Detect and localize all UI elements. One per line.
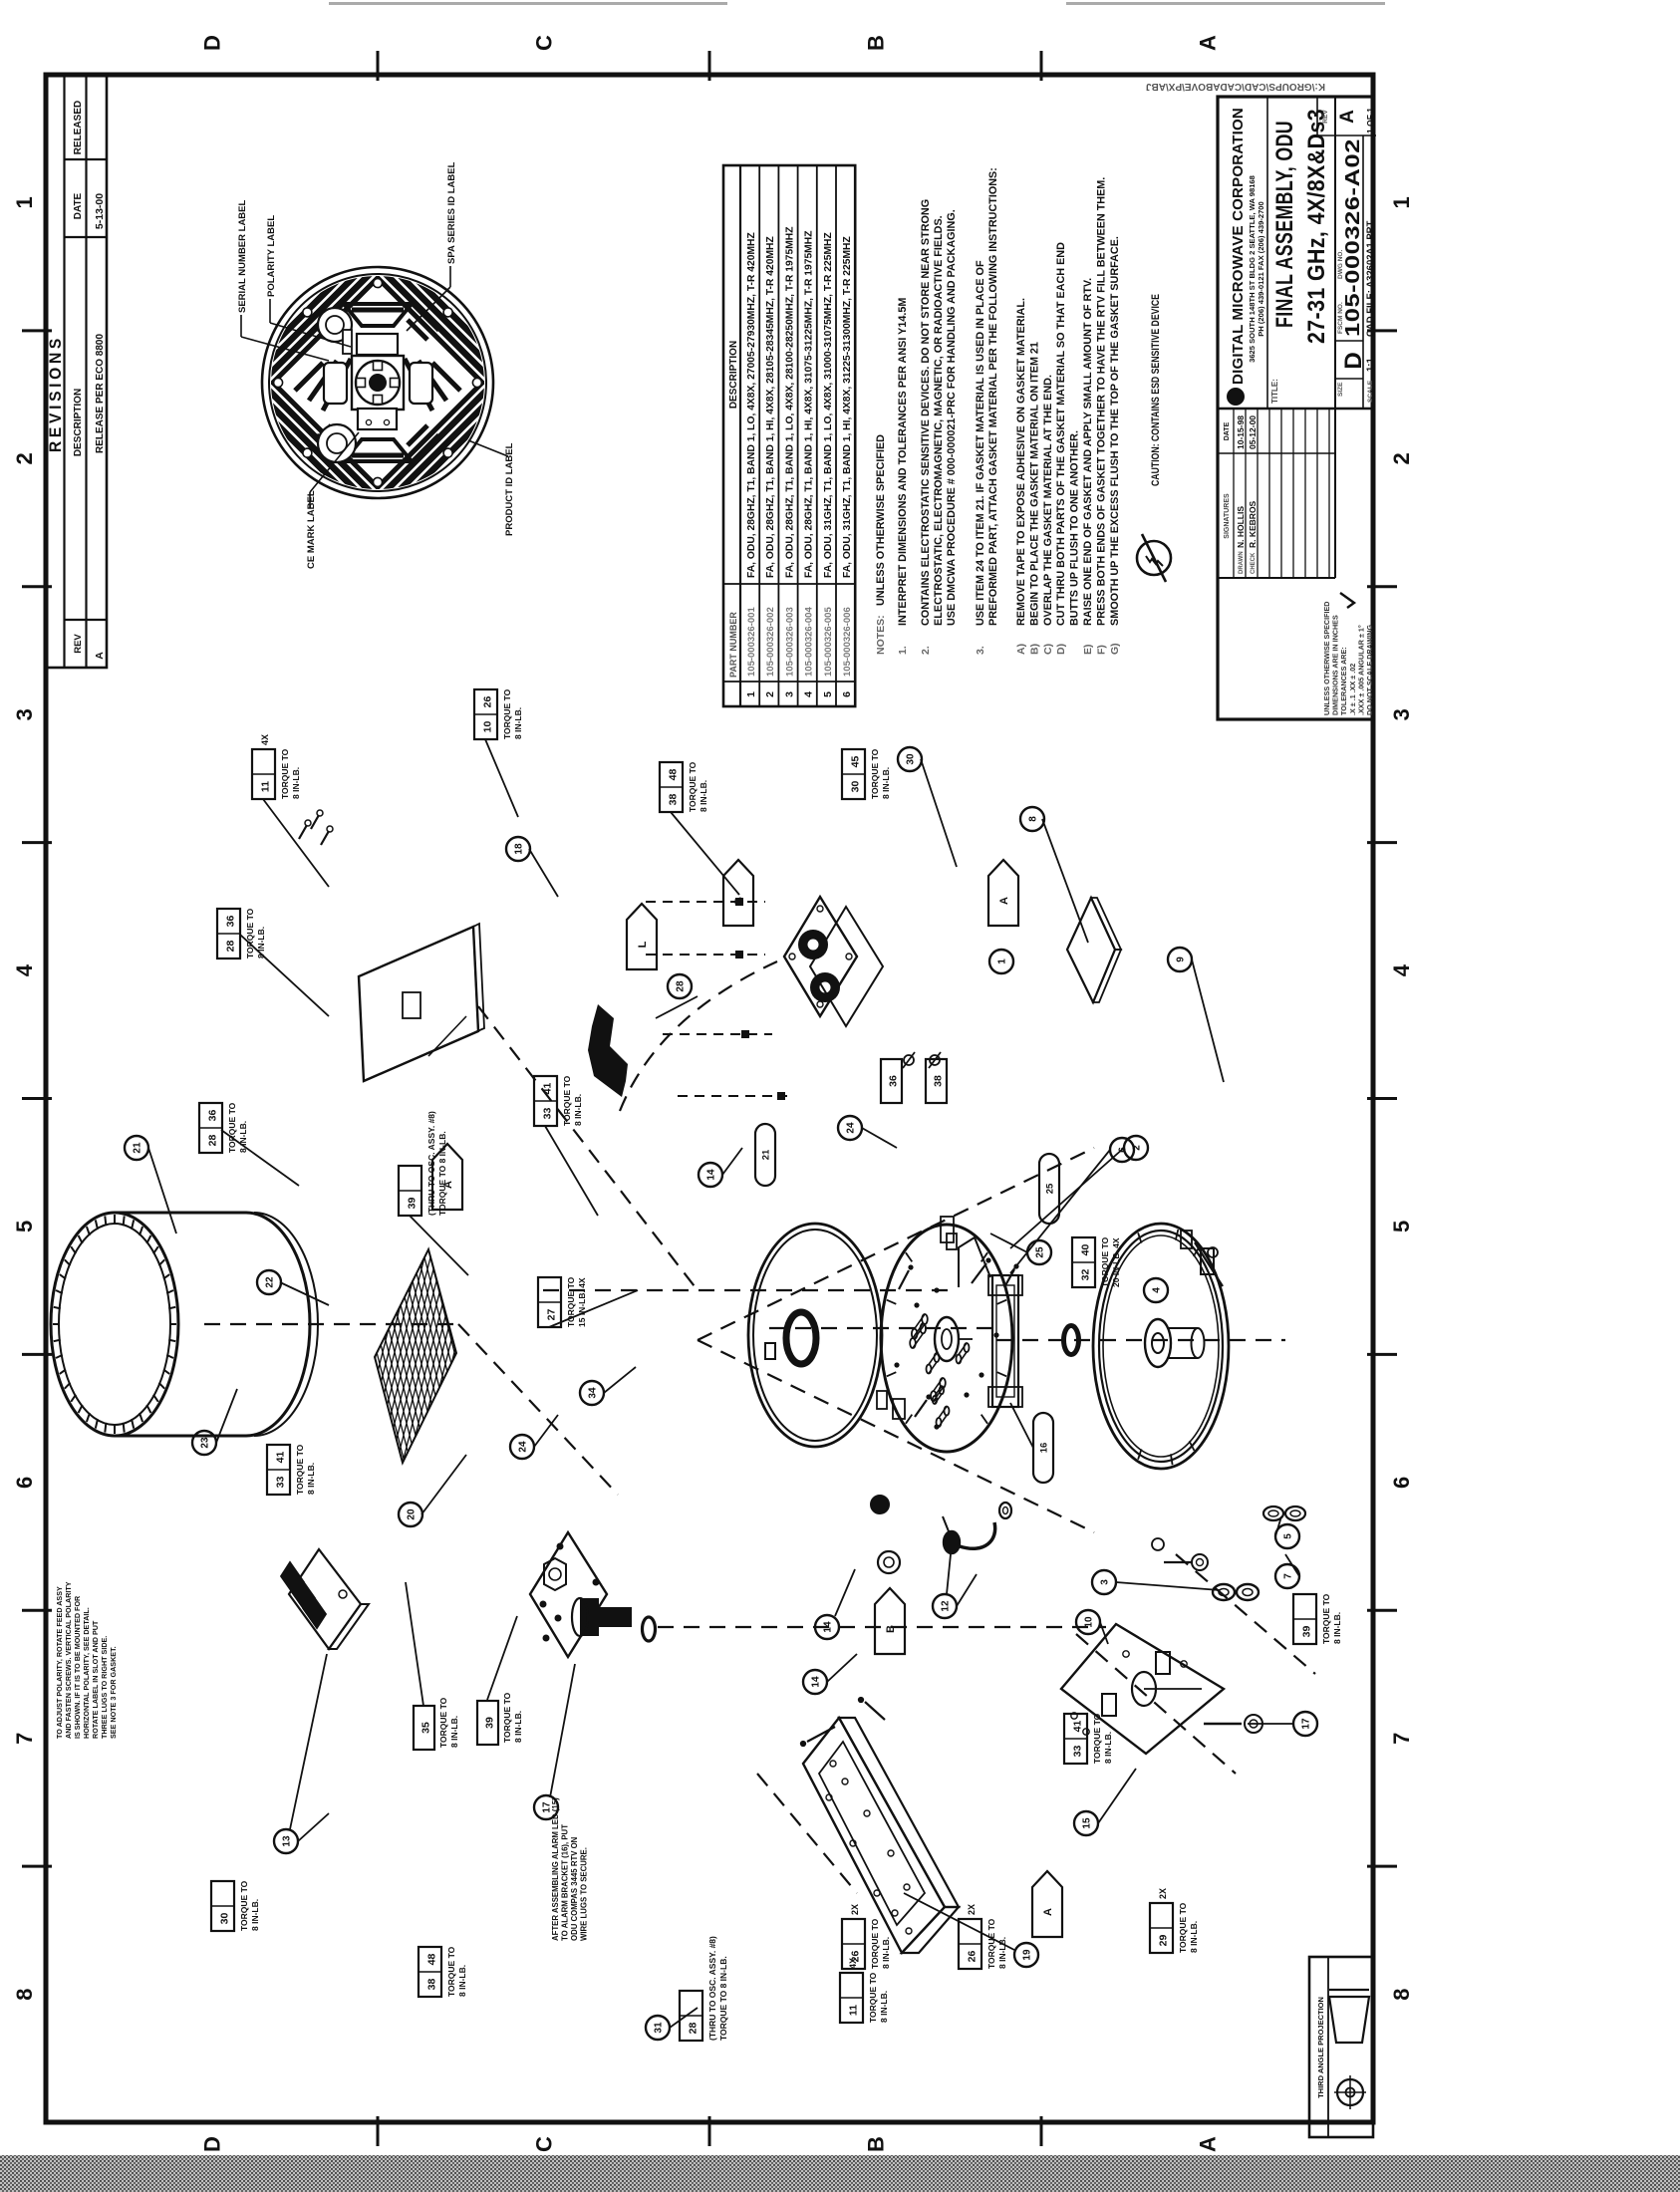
svg-text:27-31 GHz, 4X/8X&Ds3: 27-31 GHz, 4X/8X&Ds3 xyxy=(1303,109,1330,344)
svg-text:SIZE: SIZE xyxy=(1337,382,1344,397)
svg-text:DATE: DATE xyxy=(1224,421,1231,440)
svg-text:D): D) xyxy=(1055,644,1067,655)
svg-text:SERIAL NUMBER LABEL: SERIAL NUMBER LABEL xyxy=(237,200,248,313)
svg-text:3: 3 xyxy=(12,708,37,720)
svg-text:36: 36 xyxy=(888,1075,900,1087)
svg-text:CONTAINS ELECTROSTATIC SENSITI: CONTAINS ELECTROSTATIC SENSITIVE DEVICES… xyxy=(920,199,932,626)
svg-text:TORQUE TO 8 IN-LB.: TORQUE TO 8 IN-LB. xyxy=(718,1956,728,2041)
svg-text:39: 39 xyxy=(407,1198,419,1210)
svg-text:USE DMCWA PROCEDURE # 000-0000: USE DMCWA PROCEDURE # 000-000021-PRC FOR… xyxy=(946,209,958,626)
svg-text:1: 1 xyxy=(12,196,37,208)
svg-text:TORQUE TO: TORQUE TO xyxy=(245,908,255,959)
svg-text:TITLE:: TITLE: xyxy=(1270,379,1279,404)
svg-text:D: D xyxy=(200,2136,225,2152)
svg-text:33: 33 xyxy=(275,1477,287,1489)
svg-text:15: 15 xyxy=(1082,1817,1093,1829)
svg-text:31: 31 xyxy=(654,2022,665,2034)
svg-text:2: 2 xyxy=(12,452,37,464)
svg-text:33: 33 xyxy=(1072,1746,1084,1758)
svg-text:36: 36 xyxy=(225,916,237,928)
svg-text:DRAWN: DRAWN xyxy=(1239,551,1245,574)
svg-text:8 IN-LB.: 8 IN-LB. xyxy=(513,707,523,739)
svg-text:18: 18 xyxy=(514,843,525,855)
svg-text:8 IN-LB.: 8 IN-LB. xyxy=(250,1899,260,1931)
svg-text:39: 39 xyxy=(484,1717,496,1729)
svg-text:7: 7 xyxy=(1389,1733,1414,1745)
svg-text:TORQUE TO: TORQUE TO xyxy=(870,748,880,799)
svg-text:8 IN-LB.: 8 IN-LB. xyxy=(699,780,708,812)
svg-text:REV: REV xyxy=(1322,110,1329,124)
svg-text:TORQUE TO: TORQUE TO xyxy=(870,1918,880,1969)
svg-text:30: 30 xyxy=(850,781,862,793)
svg-text:TORQUE TO: TORQUE TO xyxy=(280,748,290,799)
svg-text:B: B xyxy=(864,35,889,51)
svg-text:TORQUE TO: TORQUE TO xyxy=(227,1102,237,1153)
svg-text:34: 34 xyxy=(588,1387,599,1399)
svg-text:2: 2 xyxy=(1132,1145,1143,1151)
svg-text:TORQUE TO: TORQUE TO xyxy=(295,1444,305,1495)
svg-text:5: 5 xyxy=(822,691,834,697)
svg-text:TORQUE TO: TORQUE TO xyxy=(446,1946,456,1997)
svg-text:REV: REV xyxy=(73,634,84,654)
svg-text:28: 28 xyxy=(225,941,237,953)
svg-text:4X: 4X xyxy=(848,1958,858,1969)
svg-text:38: 38 xyxy=(668,794,680,806)
svg-text:REMOVE TAPE TO EXPOSE ADHESIVE: REMOVE TAPE TO EXPOSE ADHESIVE ON GASKET… xyxy=(1015,298,1027,626)
svg-text:A: A xyxy=(1337,110,1358,124)
svg-text:PRESS BOTH ENDS OF GASKET TOGE: PRESS BOTH ENDS OF GASKET TOGETHER TO HA… xyxy=(1095,177,1107,626)
svg-text:28: 28 xyxy=(207,1135,219,1147)
svg-text:PRODUCT ID LABEL: PRODUCT ID LABEL xyxy=(504,442,515,536)
svg-text:13: 13 xyxy=(282,1835,293,1847)
svg-text:38: 38 xyxy=(426,1979,438,1991)
svg-text:27: 27 xyxy=(546,1309,558,1321)
svg-text:BUTTS UP FLUSH TO ONE ANOTHER.: BUTTS UP FLUSH TO ONE ANOTHER. xyxy=(1069,430,1081,626)
svg-text:8 IN-LB.: 8 IN-LB. xyxy=(291,767,301,799)
svg-text:4: 4 xyxy=(12,963,37,976)
svg-text:28: 28 xyxy=(688,2023,700,2035)
svg-text:PREFORMED PART, ATTACH GASKET: PREFORMED PART, ATTACH GASKET MATERIAL P… xyxy=(987,167,999,626)
svg-text:05-12-00: 05-12-00 xyxy=(1248,415,1258,449)
svg-text:17: 17 xyxy=(542,1801,553,1813)
svg-text:REVISIONS: REVISIONS xyxy=(46,335,65,452)
svg-text:6: 6 xyxy=(12,1477,37,1489)
svg-text:3: 3 xyxy=(1100,1579,1111,1585)
svg-text:L: L xyxy=(637,941,649,948)
svg-text:16: 16 xyxy=(1039,1443,1050,1454)
svg-text:39: 39 xyxy=(1301,1626,1313,1638)
svg-text:23: 23 xyxy=(200,1437,211,1449)
svg-text:AND FASTEN SCREWS. VERTICAL PO: AND FASTEN SCREWS. VERTICAL POLARITY xyxy=(64,1581,73,1739)
svg-text:ODU COMPAS 3445 RTV ON: ODU COMPAS 3445 RTV ON xyxy=(570,1836,579,1941)
svg-text:4: 4 xyxy=(1152,1287,1163,1293)
svg-text:19: 19 xyxy=(1022,1949,1033,1961)
svg-text:ROTATE LABEL IN SLOT AND PUT: ROTATE LABEL IN SLOT AND PUT xyxy=(91,1620,100,1739)
svg-text:F): F) xyxy=(1095,645,1107,655)
svg-text:6: 6 xyxy=(841,691,853,697)
svg-text:21: 21 xyxy=(761,1149,772,1160)
svg-text:(THRU TO OSC. ASSY. #8): (THRU TO OSC. ASSY. #8) xyxy=(707,1936,717,2041)
svg-text:48: 48 xyxy=(426,1954,438,1966)
svg-text:3: 3 xyxy=(1389,708,1414,720)
svg-text:UNLESS OTHERWISE SPECIFIED: UNLESS OTHERWISE SPECIFIED xyxy=(875,434,887,606)
svg-text:INTERPRET DIMENSIONS AND TOLER: INTERPRET DIMENSIONS AND TOLERANCES PER … xyxy=(897,298,909,626)
svg-text:TORQUE TO: TORQUE TO xyxy=(1100,1236,1110,1287)
svg-text:105-000326-005: 105-000326-005 xyxy=(823,607,834,677)
svg-text:FA, ODU, 28GHZ, T1, BAND 1, LO: FA, ODU, 28GHZ, T1, BAND 1, LO, 4X8X, 28… xyxy=(784,227,795,579)
svg-text:A: A xyxy=(1042,1908,1054,1916)
svg-text:1: 1 xyxy=(745,691,757,697)
svg-text:D: D xyxy=(200,35,225,51)
svg-text:5-13-00: 5-13-00 xyxy=(94,193,106,229)
svg-text:1: 1 xyxy=(997,959,1008,964)
svg-text:20 IN-LB. 4X: 20 IN-LB. 4X xyxy=(1111,1237,1121,1287)
svg-text:THIRD ANGLE PROJECTION: THIRD ANGLE PROJECTION xyxy=(1316,1997,1325,2098)
svg-text:SEE NOTE 3 FOR GASKET.: SEE NOTE 3 FOR GASKET. xyxy=(109,1646,118,1739)
svg-text:FA, ODU, 28GHZ, T1, BAND 1, HI: FA, ODU, 28GHZ, T1, BAND 1, HI, 4X8X, 28… xyxy=(765,236,776,578)
svg-text:TORQUE TO: TORQUE TO xyxy=(438,1697,448,1748)
svg-text:2: 2 xyxy=(1389,452,1414,464)
svg-text:C: C xyxy=(532,2136,557,2152)
svg-text:A: A xyxy=(998,897,1010,905)
svg-text:26: 26 xyxy=(967,1951,979,1963)
svg-text:8: 8 xyxy=(1028,816,1039,822)
svg-text:4: 4 xyxy=(1389,963,1414,976)
svg-text:40: 40 xyxy=(1080,1244,1092,1256)
svg-text:K:\GROUPS\CAD\CADABOVE\PX\ABJ: K:\GROUPS\CAD\CADABOVE\PX\ABJ xyxy=(1146,81,1325,92)
svg-text:29: 29 xyxy=(1158,1935,1170,1947)
svg-text:1.: 1. xyxy=(897,646,909,655)
svg-text:105-000326-006: 105-000326-006 xyxy=(842,607,853,677)
svg-text:USE ITEM 24 TO ITEM 21. IF GAS: USE ITEM 24 TO ITEM 21. IF GASKET MATERI… xyxy=(975,260,986,626)
svg-text:ELECTROSTATIC, ELECTROMAGNETIC: ELECTROSTATIC, ELECTROMAGNETIC, MAGNETIC… xyxy=(933,215,945,626)
svg-text:PH (206) 439-0121 FAX (206): PH (206) 439-0121 FAX (206) 439-2700 xyxy=(1257,201,1265,337)
svg-text:36: 36 xyxy=(207,1110,219,1122)
svg-text:A): A) xyxy=(1015,644,1027,655)
svg-text:8: 8 xyxy=(1389,1988,1414,2000)
svg-text:CUT THRU BOTH PARTS OF THE GAS: CUT THRU BOTH PARTS OF THE GASKET MATERI… xyxy=(1055,242,1067,626)
svg-text:TORQUE TO: TORQUE TO xyxy=(502,1692,512,1743)
svg-text:B: B xyxy=(864,2136,889,2152)
svg-text:38: 38 xyxy=(933,1075,945,1087)
svg-text:POLARITY LABEL: POLARITY LABEL xyxy=(266,215,277,297)
svg-text:28: 28 xyxy=(676,980,687,992)
svg-text:TORQUE TO: TORQUE TO xyxy=(239,1880,249,1931)
svg-text:20: 20 xyxy=(407,1508,418,1520)
svg-text:SCALE: SCALE xyxy=(1367,380,1374,403)
svg-text:24: 24 xyxy=(846,1122,857,1134)
svg-text:TORQUE TO: TORQUE TO xyxy=(986,1918,996,1969)
svg-text:A: A xyxy=(442,1181,454,1189)
svg-text:105-000326-004: 105-000326-004 xyxy=(804,607,815,677)
svg-text:DO NOT SCALE DRAWING: DO NOT SCALE DRAWING xyxy=(1365,625,1374,715)
svg-text:17: 17 xyxy=(1301,1718,1312,1730)
svg-text:8 IN-LB.: 8 IN-LB. xyxy=(306,1463,316,1495)
svg-text:C): C) xyxy=(1042,644,1054,655)
svg-text:RAISE ONE END OF GASKET AND AP: RAISE ONE END OF GASKET AND APPLY SMALL … xyxy=(1082,278,1094,626)
svg-text:DESCRIPTION: DESCRIPTION xyxy=(728,341,739,409)
svg-text:FA, ODU, 31GHZ, T1, BAND 1, HI: FA, ODU, 31GHZ, T1, BAND 1, HI, 4X8X, 31… xyxy=(842,236,853,578)
svg-text:8 IN-LB.: 8 IN-LB. xyxy=(573,1094,583,1126)
svg-text:14: 14 xyxy=(706,1169,717,1181)
svg-text:SPA SERIES ID LABEL: SPA SERIES ID LABEL xyxy=(446,161,457,264)
svg-text:A: A xyxy=(1196,2136,1221,2152)
svg-text:11: 11 xyxy=(848,2005,860,2016)
svg-text:10-15-98: 10-15-98 xyxy=(1236,415,1246,449)
svg-text:8: 8 xyxy=(12,1988,37,2000)
svg-text:8 IN-LB.: 8 IN-LB. xyxy=(457,1965,467,1997)
svg-text:1:1: 1:1 xyxy=(1365,358,1376,372)
svg-text:7: 7 xyxy=(1283,1573,1294,1579)
svg-text:105-000326-002: 105-000326-002 xyxy=(765,607,776,677)
svg-text:N. HOLLIS: N. HOLLIS xyxy=(1236,506,1246,548)
svg-text:PART NUMBER: PART NUMBER xyxy=(728,612,738,678)
svg-text:15 IN-LB. 4X: 15 IN-LB. 4X xyxy=(577,1277,587,1327)
svg-text:C: C xyxy=(532,35,557,51)
svg-text:32: 32 xyxy=(1080,1269,1092,1281)
svg-text:A: A xyxy=(94,652,106,660)
svg-text:SMOOTH UP THE EXCESS FLUSH TO: SMOOTH UP THE EXCESS FLUSH TO THE TOP OF… xyxy=(1109,236,1121,626)
svg-text:1 OF 1: 1 OF 1 xyxy=(1365,108,1375,134)
svg-text:14: 14 xyxy=(811,1676,822,1688)
svg-text:HORIZONTAL POLARITY, SEE DETAI: HORIZONTAL POLARITY, SEE DETAIL. xyxy=(82,1607,91,1739)
svg-text:3: 3 xyxy=(783,691,795,697)
svg-text:11: 11 xyxy=(260,781,272,792)
svg-text:4X: 4X xyxy=(260,734,270,745)
svg-text:41: 41 xyxy=(275,1452,287,1464)
svg-text:6: 6 xyxy=(1389,1477,1414,1489)
svg-text:2X: 2X xyxy=(850,1904,860,1915)
svg-text:CE MARK LABEL: CE MARK LABEL xyxy=(306,490,317,569)
svg-text:41: 41 xyxy=(542,1083,554,1095)
svg-text:TORQUE TO: TORQUE TO xyxy=(502,688,512,739)
svg-text:8 IN-LB.: 8 IN-LB. xyxy=(1103,1732,1113,1764)
svg-text:RELEASE PER ECO 8800: RELEASE PER ECO 8800 xyxy=(94,334,106,453)
svg-text:CHECK: CHECK xyxy=(1251,552,1257,574)
svg-text:12: 12 xyxy=(941,1600,952,1612)
svg-text:FA, ODU, 28GHZ, T1, BAND 1, LO: FA, ODU, 28GHZ, T1, BAND 1, LO, 4X8X, 27… xyxy=(746,232,757,578)
svg-text:TO ALARM BRACKET (16), PUT: TO ALARM BRACKET (16), PUT xyxy=(561,1824,570,1941)
svg-text:OVERLAP THE GASKET MATERIAL AT: OVERLAP THE GASKET MATERIAL AT THE END. xyxy=(1042,375,1054,626)
svg-text:TORQUE TO: TORQUE TO xyxy=(688,761,698,812)
svg-text:8 IN-LB.: 8 IN-LB. xyxy=(881,1937,891,1969)
svg-text:NOTES:: NOTES: xyxy=(875,615,887,655)
svg-text:CAUTION: CONTAINS ESD SENSITIV: CAUTION: CONTAINS ESD SENSITIVE DEVICE xyxy=(1150,294,1162,486)
svg-text:CAD FILE: A32602A1.PRT: CAD FILE: A32602A1.PRT xyxy=(1365,220,1376,337)
svg-text:48: 48 xyxy=(668,769,680,781)
svg-text:105-000326-A02: 105-000326-A02 xyxy=(1341,138,1364,337)
svg-text:5: 5 xyxy=(1283,1533,1294,1539)
svg-text:DIGITAL MICROWAVE CORPORATION: DIGITAL MICROWAVE CORPORATION xyxy=(1230,108,1247,385)
svg-text:BEGIN TO PLACE THE GASKET MATE: BEGIN TO PLACE THE GASKET MATERIAL ON IT… xyxy=(1028,342,1040,626)
svg-text:35: 35 xyxy=(420,1722,432,1734)
svg-text:IS SHOWN. IF IT IS TO BE MOUNT: IS SHOWN. IF IT IS TO BE MOUNTED FOR xyxy=(73,1595,82,1739)
svg-text:8 IN-LB.: 8 IN-LB. xyxy=(513,1711,523,1743)
svg-text:1: 1 xyxy=(1389,196,1414,208)
svg-text:WIRE LUGS TO SECURE.: WIRE LUGS TO SECURE. xyxy=(580,1847,589,1941)
svg-text:33: 33 xyxy=(542,1108,554,1120)
svg-text:9: 9 xyxy=(1176,957,1187,962)
svg-text:A: A xyxy=(1196,35,1221,51)
svg-text:45: 45 xyxy=(850,756,862,768)
svg-text:2: 2 xyxy=(764,691,776,697)
svg-text:TORQUE TO: TORQUE TO xyxy=(1092,1713,1102,1764)
svg-text:21: 21 xyxy=(133,1142,143,1154)
svg-text:3.: 3. xyxy=(975,646,986,655)
svg-text:5: 5 xyxy=(12,1221,37,1233)
svg-text:TORQUE TO: TORQUE TO xyxy=(1321,1593,1331,1644)
svg-text:24: 24 xyxy=(518,1441,529,1453)
svg-text:R. KEBROS: R. KEBROS xyxy=(1248,500,1258,548)
svg-text:4: 4 xyxy=(803,691,815,697)
svg-text:30: 30 xyxy=(906,753,917,765)
svg-text:2X: 2X xyxy=(1158,1888,1168,1899)
svg-text:25: 25 xyxy=(1035,1246,1046,1258)
svg-text:30: 30 xyxy=(219,1913,231,1925)
svg-text:8 IN-LB.: 8 IN-LB. xyxy=(449,1716,459,1748)
svg-text:DESCRIPTION: DESCRIPTION xyxy=(73,389,84,456)
svg-text:TO ADJUST POLARITY, ROTATE FEE: TO ADJUST POLARITY, ROTATE FEED ASSY xyxy=(55,1586,64,1739)
svg-text:105-000326-003: 105-000326-003 xyxy=(784,607,795,677)
svg-text:8 IN-LB.: 8 IN-LB. xyxy=(881,767,891,799)
svg-text:25: 25 xyxy=(1045,1183,1056,1194)
svg-text:8 IN-LB.: 8 IN-LB. xyxy=(879,1991,889,2023)
svg-text:41: 41 xyxy=(1072,1721,1084,1733)
svg-text:FINAL ASSEMBLY, ODU: FINAL ASSEMBLY, ODU xyxy=(1271,121,1298,328)
svg-text:RELEASED: RELEASED xyxy=(73,101,84,154)
svg-text:2.: 2. xyxy=(920,646,932,655)
svg-text:26: 26 xyxy=(482,696,494,708)
svg-text:8 IN-LB.: 8 IN-LB. xyxy=(1189,1921,1199,1953)
svg-text:105-000326-001: 105-000326-001 xyxy=(746,607,757,677)
svg-text:3625 SOUTH 148TH ST BLDG 2 SEA: 3625 SOUTH 148TH ST BLDG 2 SEATTLE, WA 9… xyxy=(1248,175,1257,363)
svg-text:8 IN-LB.: 8 IN-LB. xyxy=(1332,1612,1342,1644)
svg-text:FA, ODU, 28GHZ, T1, BAND 1, HI: FA, ODU, 28GHZ, T1, BAND 1, HI, 4X8X, 31… xyxy=(804,231,815,579)
svg-text:7: 7 xyxy=(12,1733,37,1745)
svg-text:B): B) xyxy=(1028,644,1040,655)
svg-text:TORQUE TO: TORQUE TO xyxy=(1178,1902,1188,1953)
svg-text:TORQUE TO: TORQUE TO xyxy=(868,1972,878,2023)
svg-text:10: 10 xyxy=(1084,1616,1095,1628)
svg-text:22: 22 xyxy=(265,1276,276,1288)
svg-text:G): G) xyxy=(1109,643,1121,655)
svg-text:B: B xyxy=(733,897,745,905)
svg-text:E): E) xyxy=(1082,645,1094,656)
svg-text:2X: 2X xyxy=(967,1904,977,1915)
svg-text:5: 5 xyxy=(1389,1221,1414,1233)
svg-text:DATE: DATE xyxy=(73,192,84,219)
svg-text:THREE LUGS TO RIGHT SIDE.: THREE LUGS TO RIGHT SIDE. xyxy=(100,1636,109,1739)
svg-text:10: 10 xyxy=(482,721,494,733)
svg-text:SIGNATURES: SIGNATURES xyxy=(1224,493,1231,539)
svg-text:FA, ODU, 31GHZ, T1, BAND 1, LO: FA, ODU, 31GHZ, T1, BAND 1, LO, 4X8X, 31… xyxy=(823,232,834,578)
